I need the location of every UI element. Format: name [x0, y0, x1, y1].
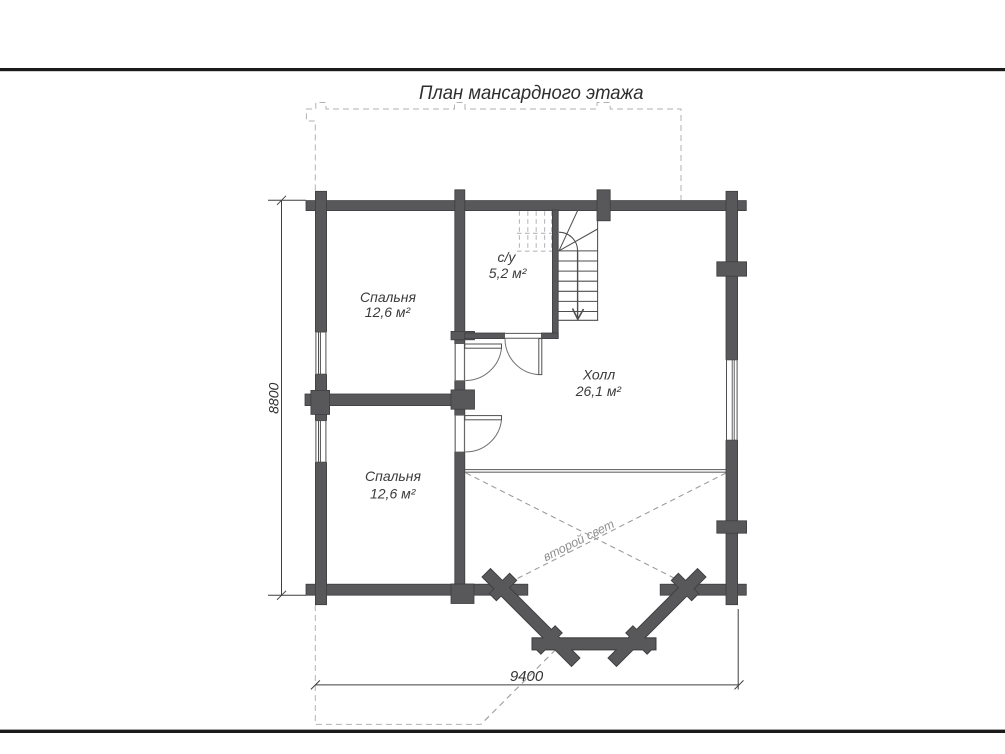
svg-text:Спальня: Спальня: [360, 289, 416, 305]
svg-text:Спальня: Спальня: [365, 468, 421, 484]
svg-text:План мансардного этажа: План мансардного этажа: [419, 83, 644, 104]
svg-text:5,2 м²: 5,2 м²: [489, 265, 528, 281]
svg-text:9400: 9400: [510, 668, 544, 685]
svg-text:с/у: с/у: [498, 249, 517, 265]
svg-text:26,1 м²: 26,1 м²: [575, 383, 623, 399]
svg-text:Холл: Холл: [582, 366, 615, 382]
svg-text:12,6 м²: 12,6 м²: [365, 304, 412, 320]
svg-text:12,6 м²: 12,6 м²: [370, 485, 417, 501]
svg-text:8800: 8800: [266, 383, 282, 414]
